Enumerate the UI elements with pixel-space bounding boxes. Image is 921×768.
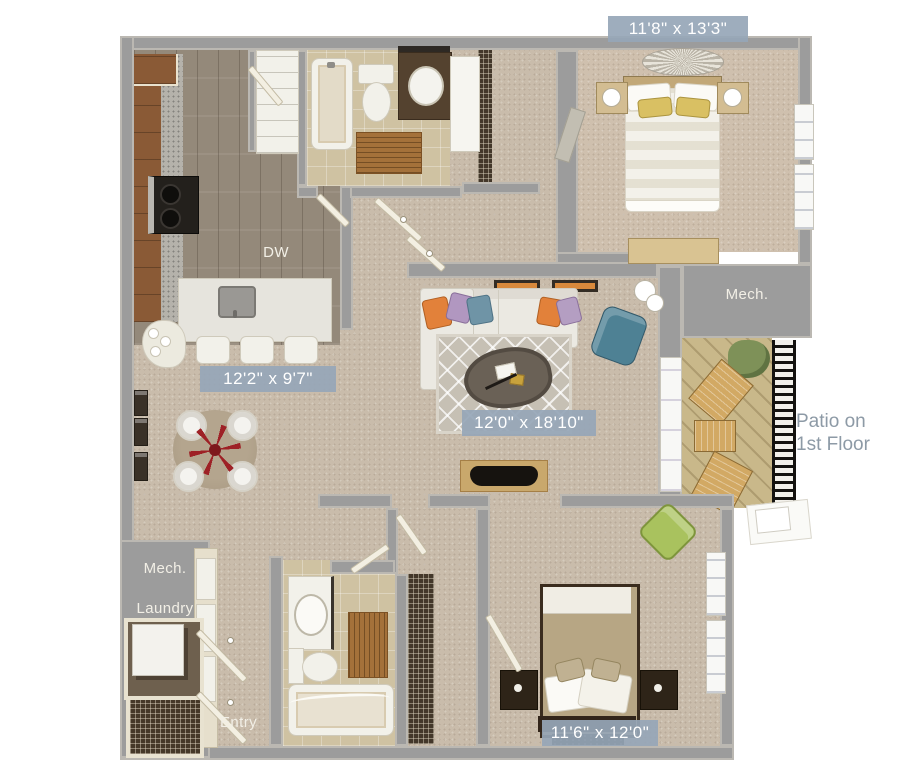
wall-bath1-bottom-a: [297, 186, 318, 198]
toilet-2-bowl: [302, 652, 338, 682]
entry-door-1-knob: [227, 637, 234, 644]
wall-divider-b: [428, 494, 490, 508]
patio-stair-box: [755, 506, 791, 533]
entry-door-2-knob: [227, 699, 234, 706]
label-dishwasher: DW: [254, 244, 298, 261]
vanity-1-mirror: [398, 46, 450, 52]
flower-3: [150, 346, 161, 357]
badge-kitchen-dimensions: 12'2" x 9'7": [200, 366, 336, 392]
flower-2: [160, 336, 171, 347]
vanity-1-sink: [408, 66, 444, 106]
nightstand-2-left-lamp: [514, 684, 522, 692]
stove-burner-1: [160, 184, 181, 205]
washer-unit: [132, 624, 184, 676]
label-patio-line1: Patio on: [796, 410, 906, 433]
bedroom2-window-1: [706, 552, 726, 616]
sofa-pillow-slate: [466, 294, 494, 326]
dining-table-center: [209, 444, 221, 456]
patio-sliding-door: [660, 357, 682, 492]
bed1-footboard: [625, 200, 720, 212]
ceiling-medallion: [642, 48, 724, 76]
wall-divider-c: [560, 494, 734, 508]
wall-bath1-bottom-b: [350, 186, 462, 198]
wall-bottom: [120, 746, 734, 760]
shower-1-pan: [450, 56, 480, 152]
bedroom2-window-2: [706, 620, 726, 694]
bathtub-1: [311, 58, 353, 150]
toilet-1-tank: [358, 64, 394, 84]
wall-shelf-2: [134, 418, 148, 446]
toilet-1-bowl: [362, 82, 391, 122]
floorplan-canvas: 11'8" x 13'3" 12'2" x 9'7" 12'0" x 18'10…: [0, 0, 921, 768]
label-laundry: Laundry: [116, 600, 214, 617]
wall-wic1-bottom: [462, 182, 540, 194]
bathtub-1-faucet: [327, 62, 335, 68]
label-mech-upper: Mech.: [682, 286, 812, 303]
hall-door-1-knob: [400, 216, 407, 223]
badge-bedroom1-dimensions: 11'8" x 13'3": [608, 16, 748, 42]
wic2-wire-shelving: [408, 574, 434, 744]
patio-table: [694, 420, 736, 452]
island-stool-3: [284, 336, 318, 364]
bed1-pillow-gold-right: [675, 96, 711, 118]
bedroom1-window-1: [794, 104, 814, 160]
bathtub-2: [288, 684, 394, 736]
wall-living-top: [407, 262, 658, 278]
label-patio-note: Patio on 1st Floor: [796, 410, 906, 456]
tv-screen: [470, 466, 538, 486]
bed2-footboard: [543, 587, 631, 614]
label-mech-lower: Mech.: [120, 560, 210, 577]
wall-shower1-mosaic: [478, 50, 492, 194]
hall-door-2-knob: [426, 250, 433, 257]
lower-wire-closet: [126, 696, 204, 758]
side-table-lamp: [646, 294, 664, 312]
island-sink: [218, 286, 256, 318]
wall-bedroom2-left: [476, 508, 490, 746]
bedroom1-desk: [628, 238, 719, 264]
badge-bedroom2-dimensions: 11'6" x 12'0": [542, 720, 658, 746]
flower-1: [148, 328, 159, 339]
island-faucet: [233, 310, 237, 318]
island-stool-2: [240, 336, 274, 364]
wall-shelf-3: [134, 452, 148, 481]
vanity-2-sink: [294, 594, 328, 636]
island-stool-1: [196, 336, 230, 364]
bed1-pillow-gold-left: [637, 96, 673, 118]
kitchen-corner-cabinet: [134, 54, 178, 86]
lamp-1-right: [723, 88, 742, 107]
wall-divider-a: [318, 494, 392, 508]
stove-burner-2: [160, 208, 181, 229]
label-entry: Entry: [220, 714, 290, 731]
badge-living-dimensions: 12'0" x 18'10": [462, 410, 596, 436]
wall-bath2-right: [395, 574, 408, 746]
label-patio-line2: 1st Floor: [796, 433, 906, 456]
wall-shelf-1: [134, 390, 148, 416]
nightstand-2-right-lamp: [654, 684, 662, 692]
bedroom1-window-2: [794, 164, 814, 230]
bath1-wood-mat: [356, 132, 422, 174]
wall-kitchen-right: [340, 186, 353, 330]
lamp-1-left: [602, 88, 621, 107]
bath2-wood-mat: [348, 612, 388, 678]
